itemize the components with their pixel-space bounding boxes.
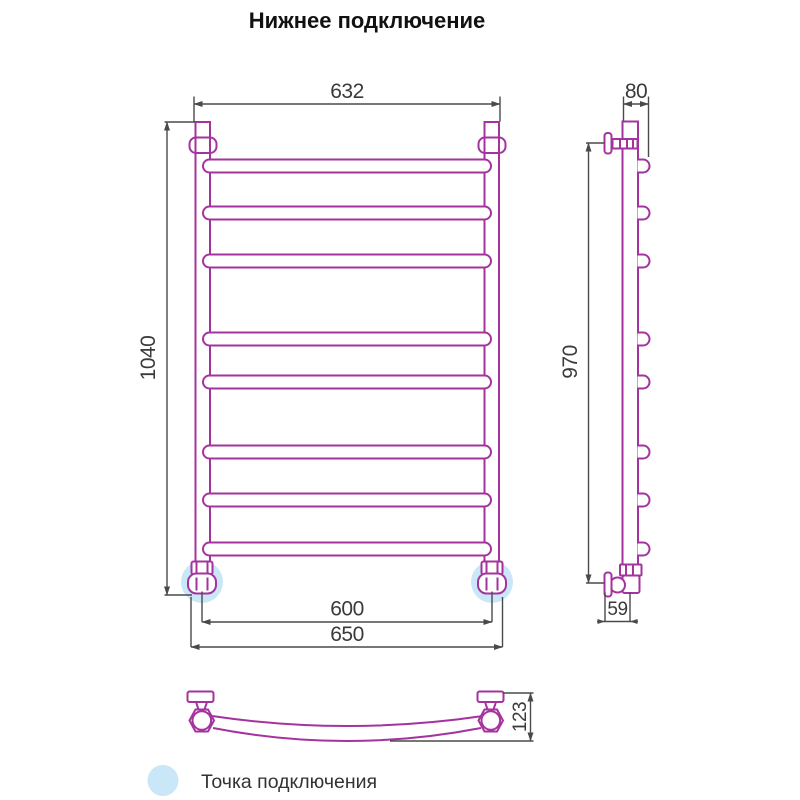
front-view	[188, 122, 506, 594]
top-bracket-right	[479, 138, 506, 154]
fitting-nut	[620, 565, 642, 576]
fitting-bore	[482, 711, 501, 730]
extension-lines	[165, 122, 196, 595]
rung-end	[638, 333, 650, 346]
dim-height-side: 970	[559, 143, 605, 583]
rungs	[203, 160, 491, 556]
rung-end	[638, 255, 650, 268]
dim-label-59: 59	[607, 599, 627, 620]
collar	[479, 138, 506, 154]
rung-end	[638, 446, 650, 459]
legend-label: Точка подключения	[201, 771, 377, 793]
dimensions: 632 1040 600 650 80 970	[137, 80, 649, 741]
bracket-neck	[196, 702, 207, 710]
rung-end	[638, 376, 650, 389]
side-tube	[623, 122, 639, 566]
fitting-bore	[193, 711, 212, 730]
side-bottom-fitting	[605, 565, 642, 597]
dim-label-600: 600	[330, 598, 364, 621]
technical-drawing-towel-rail: 632 1040 600 650 80 970	[0, 0, 800, 800]
rung	[203, 160, 491, 173]
dim-label-1040: 1040	[137, 336, 160, 381]
arrow	[598, 619, 606, 624]
arrow	[630, 619, 638, 624]
dim-label-80: 80	[625, 80, 647, 103]
fitting-ball	[478, 574, 506, 594]
legend: Точка подключения	[148, 765, 378, 796]
top-view	[188, 692, 504, 742]
bow-bracket-right	[478, 692, 504, 732]
bow-tube-back-edge	[213, 728, 481, 741]
rung	[203, 333, 491, 346]
dim-connection-spacing: 600	[202, 592, 492, 623]
rung	[203, 255, 491, 268]
dim-height-front: 1040	[137, 122, 196, 595]
rung-end	[638, 160, 650, 173]
dim-label-650: 650	[330, 623, 364, 646]
rung-end	[638, 207, 650, 220]
bottom-fitting-right	[478, 562, 506, 594]
dim-label-632: 632	[330, 80, 364, 103]
side-rung-ends	[638, 160, 650, 556]
dim-bow-depth: 123	[390, 693, 534, 741]
wall-plate	[478, 692, 504, 703]
dim-depth-bottom: 59	[597, 593, 638, 625]
rung	[203, 446, 491, 459]
bow-tube-front-edge	[212, 716, 483, 726]
dim-label-123: 123	[510, 702, 531, 732]
collar	[190, 138, 217, 154]
top-bracket-left	[190, 138, 217, 154]
rung	[203, 543, 491, 556]
bow-bracket-left	[188, 692, 215, 732]
rung-end	[638, 494, 650, 507]
connection-point-swatch	[148, 765, 179, 796]
rung	[203, 494, 491, 507]
wall-plate	[188, 692, 214, 703]
dim-width-top: 632	[194, 80, 500, 122]
rung	[203, 207, 491, 220]
side-view	[605, 122, 650, 597]
dim-label-970: 970	[559, 345, 582, 379]
drawing-svg: 632 1040 600 650 80 970	[0, 0, 800, 800]
page-title: Нижнее подключение	[249, 8, 486, 33]
fitting-ball	[188, 574, 216, 594]
bracket-neck	[485, 702, 496, 710]
rung	[203, 376, 491, 389]
bottom-fitting-left	[188, 562, 216, 594]
rung-end	[638, 543, 650, 556]
bracket-plate	[605, 133, 612, 154]
